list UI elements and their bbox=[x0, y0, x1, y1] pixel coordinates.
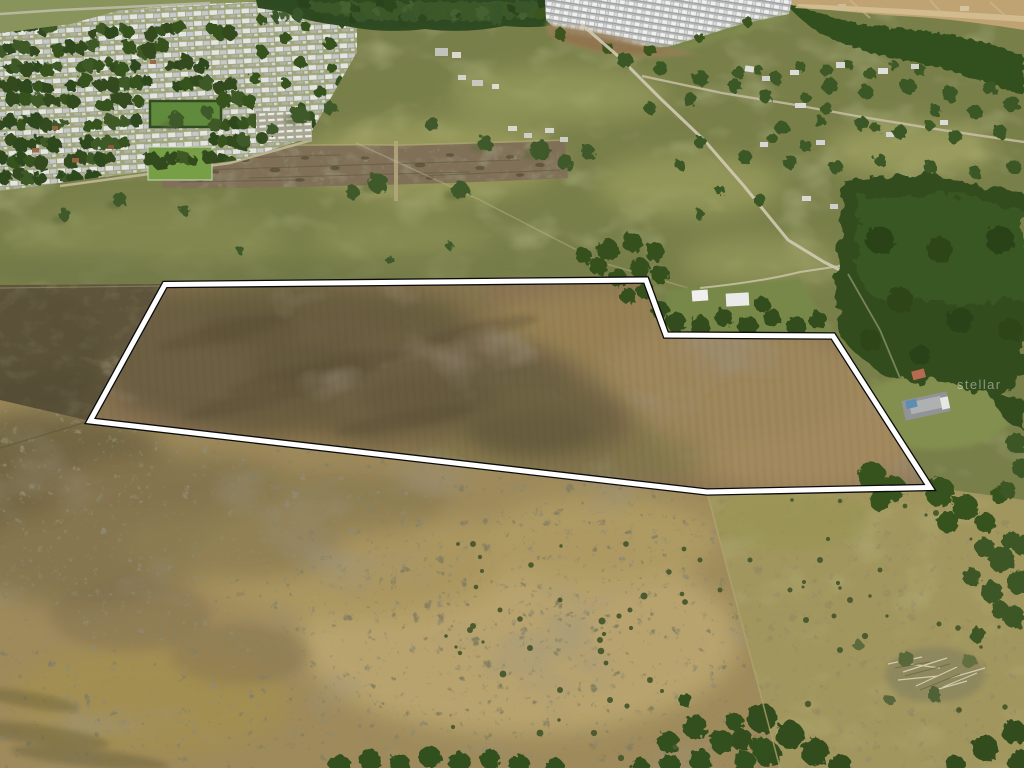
svg-text:stellar: stellar bbox=[957, 377, 1001, 392]
